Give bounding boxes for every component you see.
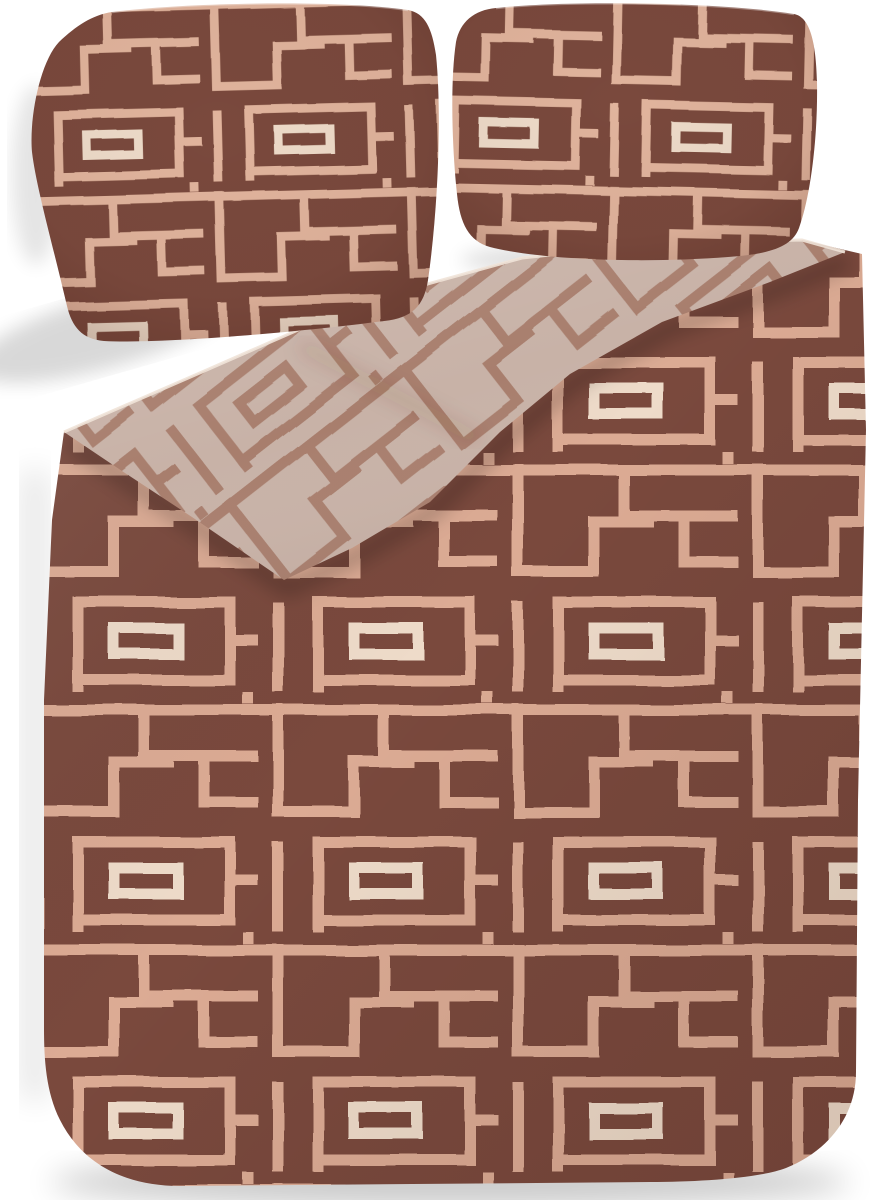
bedding-product-photo	[0, 0, 870, 1200]
pillowcase-right	[440, 0, 840, 288]
pillow-left-shading	[20, 0, 460, 360]
pillow-right-shading	[440, 0, 840, 288]
pillowcase-left	[20, 0, 460, 360]
bedding-photo-stage	[0, 0, 870, 1200]
